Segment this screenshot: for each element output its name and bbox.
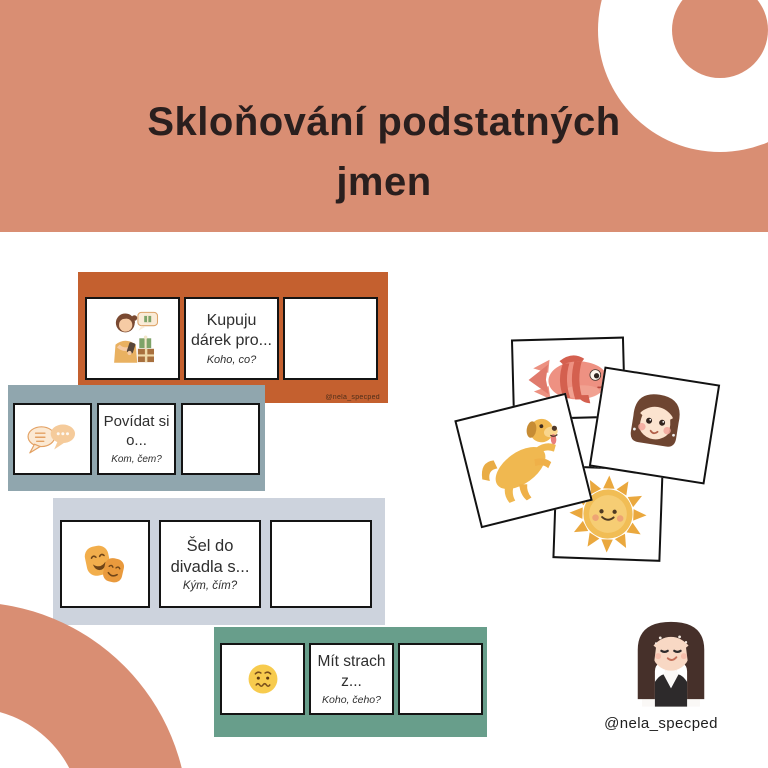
- answer-box: [270, 520, 372, 608]
- picture-card-girl: [589, 366, 720, 484]
- picture-box: [13, 403, 92, 475]
- phrase-text: Povídat si o...: [99, 413, 174, 451]
- card-strip-kupuju-darek: Kupuju dárek pro... Koho, co? @nela_spec…: [78, 272, 388, 403]
- theater-masks-illustration: [73, 536, 137, 592]
- author-avatar-illustration: [612, 604, 730, 718]
- watermark-text: @nela_specped: [325, 394, 380, 401]
- phrase-box: Šel do divadla s... Kým, čím?: [159, 520, 261, 608]
- phrase-box: Kupuju dárek pro... Koho, co?: [184, 297, 279, 380]
- phrase-text: Kupuju dárek pro...: [186, 311, 277, 351]
- page-title-line1: Skloňování podstatných: [74, 92, 694, 152]
- case-question-text: Kom, čem?: [111, 454, 162, 465]
- author-handle: @nela_specped: [583, 715, 739, 732]
- author-avatar: [612, 604, 730, 718]
- picture-box: [85, 297, 180, 380]
- card-strip-sel-do-divadla: Šel do divadla s... Kým, čím?: [53, 498, 385, 625]
- answer-box: [181, 403, 260, 475]
- case-question-text: Kým, čím?: [183, 580, 237, 592]
- phrase-text: Mít strach z...: [311, 652, 392, 691]
- woman-buying-gift-illustration: [96, 304, 170, 374]
- girl-face-illustration: [602, 375, 707, 476]
- picture-box: [220, 643, 305, 715]
- phrase-text: Šel do divadla s...: [161, 536, 259, 577]
- worried-face-illustration: [246, 662, 280, 696]
- speech-bubbles-illustration: [24, 418, 82, 460]
- case-question-text: Koho, co?: [207, 354, 257, 366]
- picture-box: [60, 520, 150, 608]
- case-question-text: Koho, čeho?: [322, 694, 381, 706]
- page-background: Skloňování podstatných jmen: [0, 0, 768, 768]
- dog-illustration: [461, 401, 585, 519]
- page-title: Skloňování podstatných jmen: [74, 92, 694, 212]
- header-band: Skloňování podstatných jmen: [0, 0, 768, 232]
- card-strip-povidat-si: Povídat si o... Kom, čem?: [8, 385, 265, 491]
- phrase-box: Mít strach z... Koho, čeho?: [309, 643, 394, 715]
- answer-box: [398, 643, 483, 715]
- page-title-line2: jmen: [74, 152, 694, 212]
- card-strip-mit-strach: Mít strach z... Koho, čeho?: [214, 627, 487, 737]
- phrase-box: Povídat si o... Kom, čem?: [97, 403, 176, 475]
- answer-box: [283, 297, 378, 380]
